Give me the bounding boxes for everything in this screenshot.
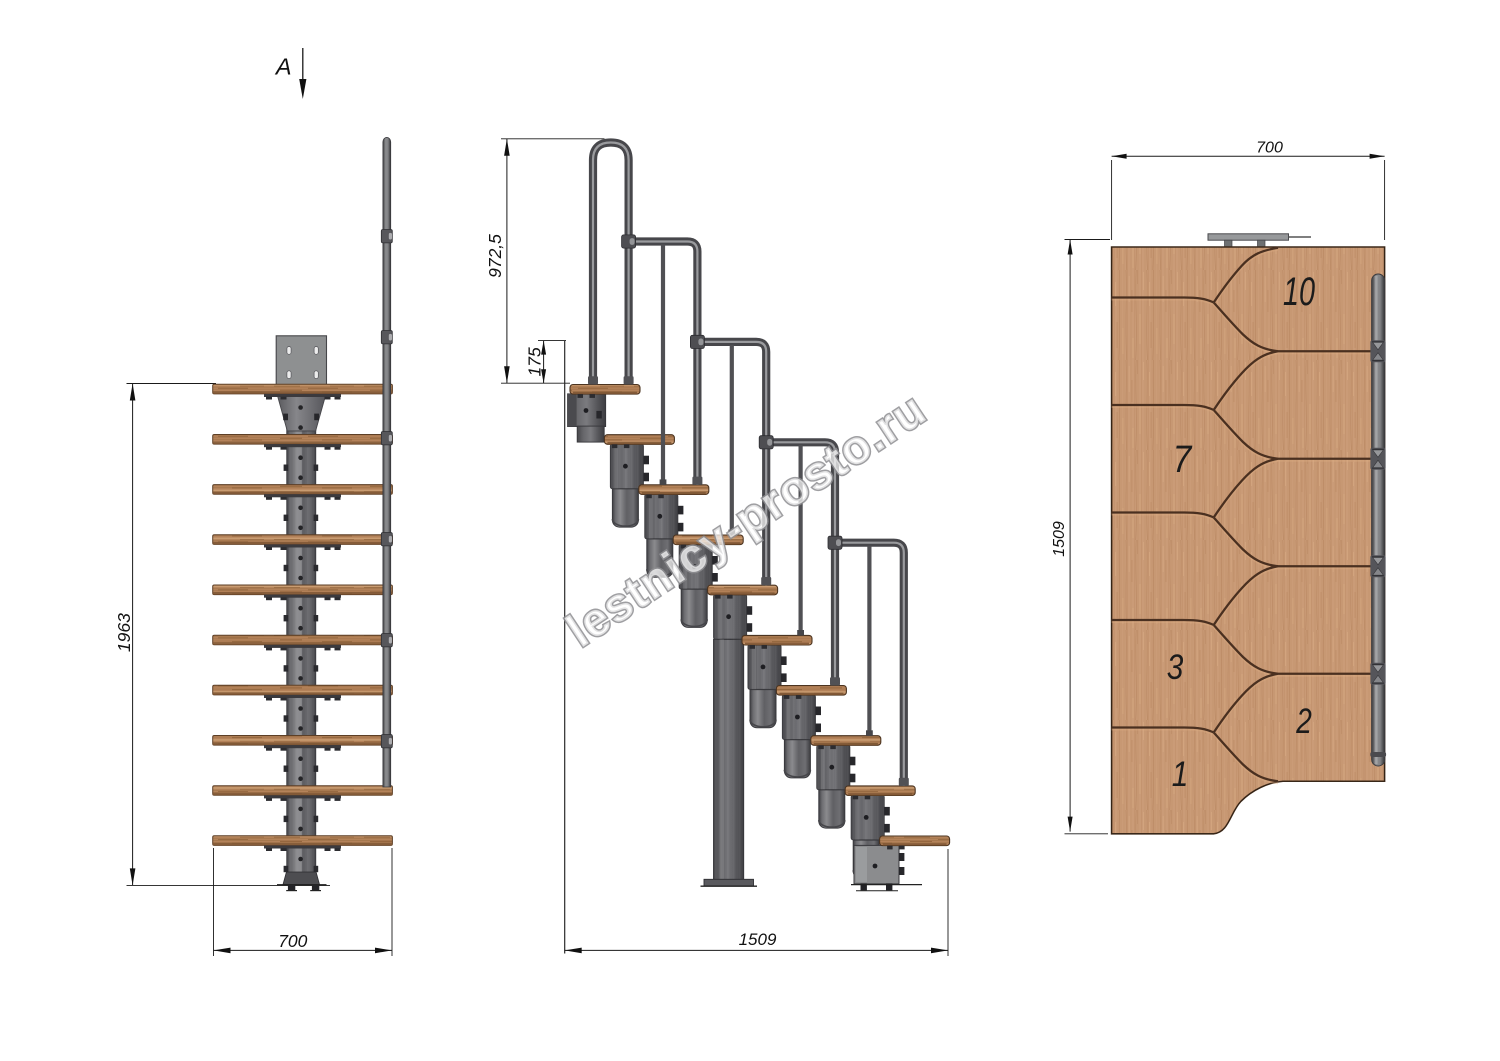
svg-text:1509: 1509	[1051, 521, 1068, 557]
svg-text:10: 10	[1283, 269, 1316, 314]
svg-text:3: 3	[1167, 648, 1184, 687]
svg-text:1: 1	[1172, 755, 1189, 794]
svg-text:700: 700	[1256, 140, 1283, 157]
svg-text:972,5: 972,5	[485, 234, 505, 278]
svg-text:700: 700	[278, 931, 307, 951]
svg-text:1963: 1963	[114, 613, 134, 652]
svg-text:7: 7	[1173, 438, 1193, 480]
svg-text:1509: 1509	[739, 930, 777, 949]
svg-text:A: A	[274, 53, 292, 79]
svg-text:2: 2	[1295, 701, 1312, 741]
svg-text:175: 175	[525, 347, 545, 376]
